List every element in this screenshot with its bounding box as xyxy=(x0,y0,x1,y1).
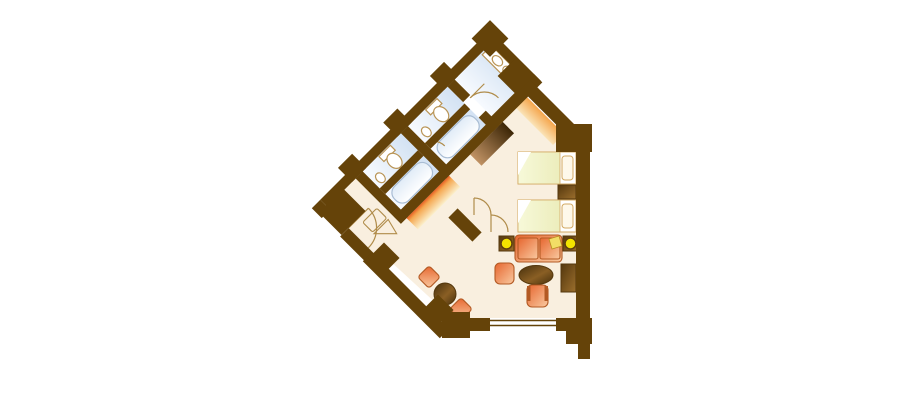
window xyxy=(490,318,556,331)
end-table-right xyxy=(563,236,578,251)
right-wall xyxy=(576,138,590,318)
bottom-wall-right xyxy=(556,318,578,331)
pillow-2 xyxy=(562,204,573,228)
end-table-left xyxy=(499,236,514,251)
table-lamp-right xyxy=(565,238,576,249)
pillow-1 xyxy=(562,156,573,180)
nightstand xyxy=(558,185,576,199)
tv-cabinet xyxy=(561,264,576,292)
twin-bed-2 xyxy=(518,200,576,232)
floor-plan-canvas xyxy=(0,0,910,400)
sofa-two-seat xyxy=(515,235,562,262)
armchair xyxy=(495,263,514,284)
twin-bed-1 xyxy=(518,152,576,184)
lounge-chair xyxy=(527,285,548,307)
coffee-table-oval xyxy=(519,266,553,285)
table-lamp-left xyxy=(501,238,512,249)
